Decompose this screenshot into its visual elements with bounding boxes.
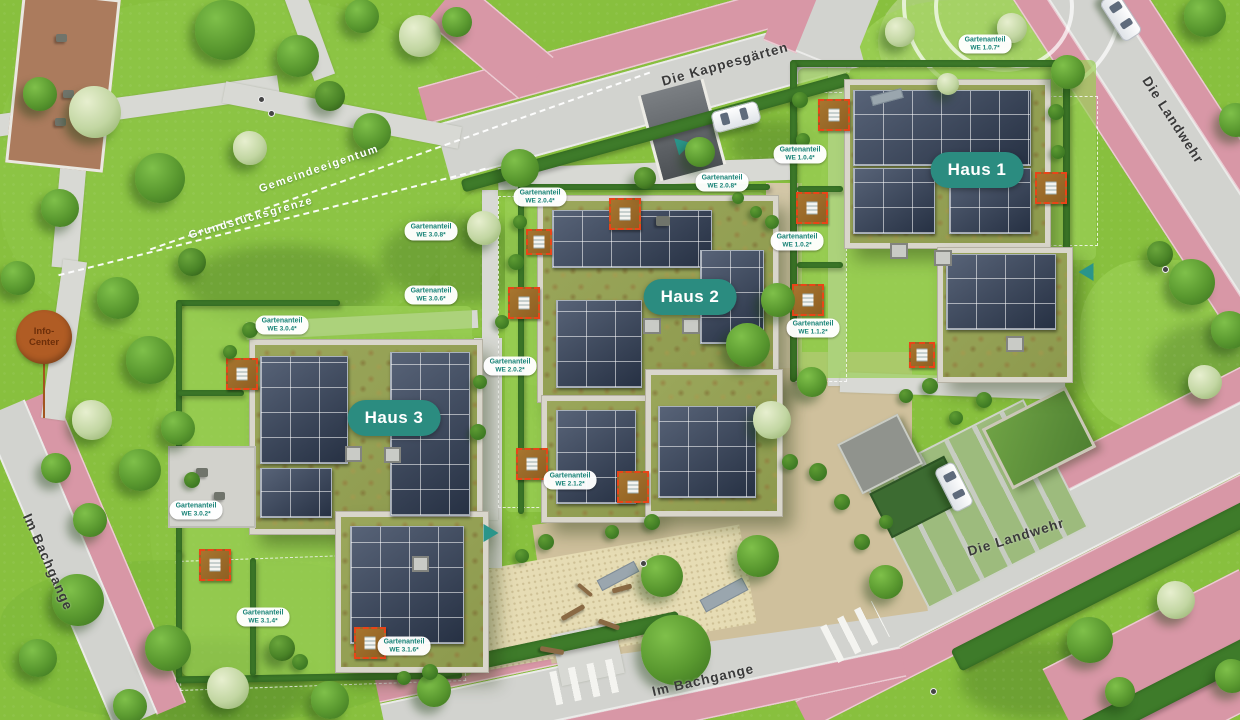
bush	[834, 494, 850, 510]
tree	[23, 77, 57, 111]
marker-glyph	[1046, 182, 1057, 195]
marker-glyph	[527, 458, 538, 471]
tree	[269, 635, 295, 661]
hedge	[176, 390, 244, 396]
roof-hatch	[412, 556, 429, 572]
bush	[899, 389, 913, 403]
garden-share-line1: Gartenanteil	[780, 147, 821, 155]
solar-array	[946, 254, 1056, 330]
building-pill-haus-2[interactable]: Haus 2	[644, 279, 737, 315]
garden-share-line1: Gartenanteil	[793, 321, 834, 329]
garden-share-line2: WE 2.0.4*	[520, 198, 561, 205]
car-window	[952, 488, 966, 500]
tree	[753, 401, 791, 439]
bush	[515, 549, 529, 563]
roof-terrace-table	[656, 216, 670, 226]
garden-share-line2: WE 3.1.4*	[243, 618, 284, 625]
marker-glyph	[534, 236, 545, 249]
bush	[732, 192, 744, 204]
bush	[397, 671, 411, 685]
tree	[937, 73, 959, 95]
tree	[119, 449, 161, 491]
direction-arrow-icon	[484, 524, 499, 542]
roof-hatch	[345, 446, 362, 462]
bush	[750, 206, 762, 218]
terrace-table	[214, 492, 225, 500]
marker-glyph	[917, 349, 928, 362]
garden-share-line2: WE 3.0.4*	[262, 326, 303, 333]
tree	[1147, 241, 1173, 267]
tree	[126, 336, 174, 384]
roof-hatch	[643, 318, 661, 334]
tree	[761, 283, 795, 317]
bush	[949, 411, 963, 425]
info-center-pointer	[43, 362, 45, 418]
garden-share-label[interactable]: GartenanteilWE 1.0.7*	[959, 35, 1012, 54]
bush	[644, 514, 660, 530]
bush	[782, 454, 798, 470]
direction-arrow-icon	[1079, 263, 1094, 281]
tree	[41, 189, 79, 227]
tree	[19, 639, 57, 677]
terrace-marker-icon	[617, 471, 649, 503]
tree	[797, 367, 827, 397]
garden-share-line1: Gartenanteil	[490, 359, 531, 367]
car-window	[1120, 17, 1134, 29]
bush	[470, 424, 486, 440]
garden-share-line2: WE 1.0.7*	[965, 45, 1006, 52]
garden-share-label[interactable]: GartenanteilWE 3.1.4*	[237, 608, 290, 627]
solar-array	[260, 468, 332, 518]
person-dot	[930, 688, 937, 695]
roof-hatch	[934, 250, 952, 266]
garden-share-line2: WE 3.1.6*	[384, 647, 425, 654]
info-center-line2: Center	[29, 337, 59, 348]
roof-hatch	[890, 243, 908, 259]
garden-share-line1: Gartenanteil	[176, 503, 217, 511]
tree	[1, 261, 35, 295]
terrace-marker-icon	[516, 448, 548, 480]
garden-share-line1: Gartenanteil	[550, 473, 591, 481]
bush	[922, 378, 938, 394]
tree	[1051, 55, 1085, 89]
bush	[513, 215, 527, 229]
tree	[311, 681, 349, 719]
tree	[207, 667, 249, 709]
garden-share-line1: Gartenanteil	[411, 288, 452, 296]
tree	[501, 149, 539, 187]
marker-glyph	[803, 294, 814, 307]
garden-share-line1: Gartenanteil	[965, 37, 1006, 45]
terrace-marker-icon	[526, 229, 552, 255]
roof-hatch	[682, 318, 700, 334]
car-window	[720, 112, 731, 126]
tree	[1105, 677, 1135, 707]
marker-glyph	[210, 559, 221, 572]
tree	[1169, 259, 1215, 305]
garden-share-line2: WE 1.0.2*	[777, 242, 818, 249]
info-center-line1: Info-	[34, 326, 55, 337]
marker-glyph	[365, 637, 376, 650]
bush	[495, 315, 509, 329]
bush	[605, 525, 619, 539]
terrace-marker-icon	[796, 192, 828, 224]
park-terrace	[5, 0, 121, 173]
garden-share-label[interactable]: GartenanteilWE 3.0.8*	[405, 222, 458, 241]
tree	[1184, 0, 1226, 37]
garden-share-label[interactable]: GartenanteilWE 2.0.8*	[696, 173, 749, 192]
roof-hatch	[384, 447, 401, 463]
car-window	[943, 470, 957, 483]
solar-array	[260, 356, 348, 464]
tree	[178, 248, 206, 276]
garden-share-line2: WE 1.1.2*	[793, 329, 834, 336]
bush	[292, 654, 308, 670]
hedge	[176, 300, 340, 306]
garden-share-label[interactable]: GartenanteilWE 1.0.2*	[771, 232, 824, 251]
site-plan: Die Kappesgärten Die Landwehr Die Landwe…	[0, 0, 1240, 720]
marker-glyph	[829, 109, 840, 122]
tree	[869, 565, 903, 599]
tree	[726, 323, 770, 367]
tree	[641, 555, 683, 597]
tree	[41, 453, 71, 483]
tree	[399, 15, 441, 57]
tree	[69, 86, 121, 138]
bush	[879, 515, 893, 529]
info-center-badge[interactable]: Info- Center	[16, 310, 72, 364]
bush	[1048, 104, 1064, 120]
tree	[1157, 581, 1195, 619]
person-dot	[1162, 266, 1169, 273]
person-dot	[268, 110, 275, 117]
hedge	[790, 60, 1070, 67]
solar-array	[658, 406, 756, 498]
garden-share-line2: WE 2.0.2*	[490, 367, 531, 374]
garden-share-line1: Gartenanteil	[777, 234, 818, 242]
marker-glyph	[519, 297, 530, 310]
tree	[233, 131, 267, 165]
tree	[634, 167, 656, 189]
tree	[1188, 365, 1222, 399]
tree	[73, 503, 107, 537]
bush	[538, 534, 554, 550]
bush	[223, 345, 237, 359]
garden-share-label[interactable]: GartenanteilWE 3.1.6*	[378, 637, 431, 656]
garden-share-label[interactable]: GartenanteilWE 2.1.2*	[544, 471, 597, 490]
tree	[161, 411, 195, 445]
tree	[315, 81, 345, 111]
garden-share-line1: Gartenanteil	[520, 190, 561, 198]
park-bench	[55, 118, 66, 126]
terrace-marker-icon	[792, 284, 824, 316]
person-dot	[640, 560, 647, 567]
garden-share-line2: WE 2.0.8*	[702, 183, 743, 190]
tree	[113, 689, 147, 720]
bush	[809, 463, 827, 481]
terrace-marker-icon	[609, 198, 641, 230]
garden-share-line1: Gartenanteil	[702, 175, 743, 183]
tree	[345, 0, 379, 33]
garden-share-line2: WE 2.1.2*	[550, 481, 591, 488]
marker-glyph	[807, 202, 818, 215]
park-bench	[56, 34, 67, 42]
garden-share-label[interactable]: GartenanteilWE 3.0.6*	[405, 286, 458, 305]
garden-share-label[interactable]: GartenanteilWE 2.0.4*	[514, 188, 567, 207]
car-window	[739, 107, 749, 120]
garden-share-line1: Gartenanteil	[384, 639, 425, 647]
roof-hatch	[1006, 336, 1024, 352]
marker-glyph	[237, 368, 248, 381]
tree	[97, 277, 139, 319]
bush	[473, 375, 487, 389]
garden-share-line2: WE 3.0.2*	[176, 511, 217, 518]
terrace-marker-icon	[226, 358, 258, 390]
tree	[1215, 659, 1240, 693]
bush	[976, 392, 992, 408]
terrace-marker-icon	[508, 287, 540, 319]
tree	[442, 7, 472, 37]
marker-glyph	[620, 208, 631, 221]
terrace-marker-icon	[199, 549, 231, 581]
garden-share-line1: Gartenanteil	[243, 610, 284, 618]
bush	[854, 534, 870, 550]
garden-share-line2: WE 3.0.8*	[411, 232, 452, 239]
tree	[145, 625, 191, 671]
garden-share-label[interactable]: GartenanteilWE 1.0.4*	[774, 145, 827, 164]
tree	[467, 211, 501, 245]
solar-array	[853, 168, 935, 234]
bush	[765, 215, 779, 229]
bush	[422, 664, 438, 680]
terrace-marker-icon	[1035, 172, 1067, 204]
terrace-marker-icon	[818, 99, 850, 131]
garden-share-label[interactable]: GartenanteilWE 3.0.2*	[170, 501, 223, 520]
bush	[792, 92, 808, 108]
tree	[737, 535, 779, 577]
tree	[195, 0, 255, 60]
tree	[1067, 617, 1113, 663]
tree	[1211, 311, 1240, 349]
garden-share-line2: WE 3.0.6*	[411, 296, 452, 303]
garden-share-label[interactable]: GartenanteilWE 2.0.2*	[484, 357, 537, 376]
solar-array	[556, 300, 642, 388]
person-dot	[258, 96, 265, 103]
tree	[685, 137, 715, 167]
marker-glyph	[628, 481, 639, 494]
bush	[184, 472, 200, 488]
garden-share-line2: WE 1.0.4*	[780, 155, 821, 162]
tree	[135, 153, 185, 203]
hedge	[797, 262, 843, 268]
tree	[277, 35, 319, 77]
bush	[1051, 145, 1065, 159]
bush	[508, 254, 524, 270]
garden-share-label[interactable]: GartenanteilWE 1.1.2*	[787, 319, 840, 338]
garden-share-line1: Gartenanteil	[411, 224, 452, 232]
building-pill-haus-1[interactable]: Haus 1	[931, 152, 1024, 188]
garden-share-line1: Gartenanteil	[262, 318, 303, 326]
building-pill-haus-3[interactable]: Haus 3	[348, 400, 441, 436]
garden-share-label[interactable]: GartenanteilWE 3.0.4*	[256, 316, 309, 335]
tree	[885, 17, 915, 47]
car-window	[1109, 1, 1123, 14]
tree	[72, 400, 112, 440]
terrace-marker-icon	[909, 342, 935, 368]
